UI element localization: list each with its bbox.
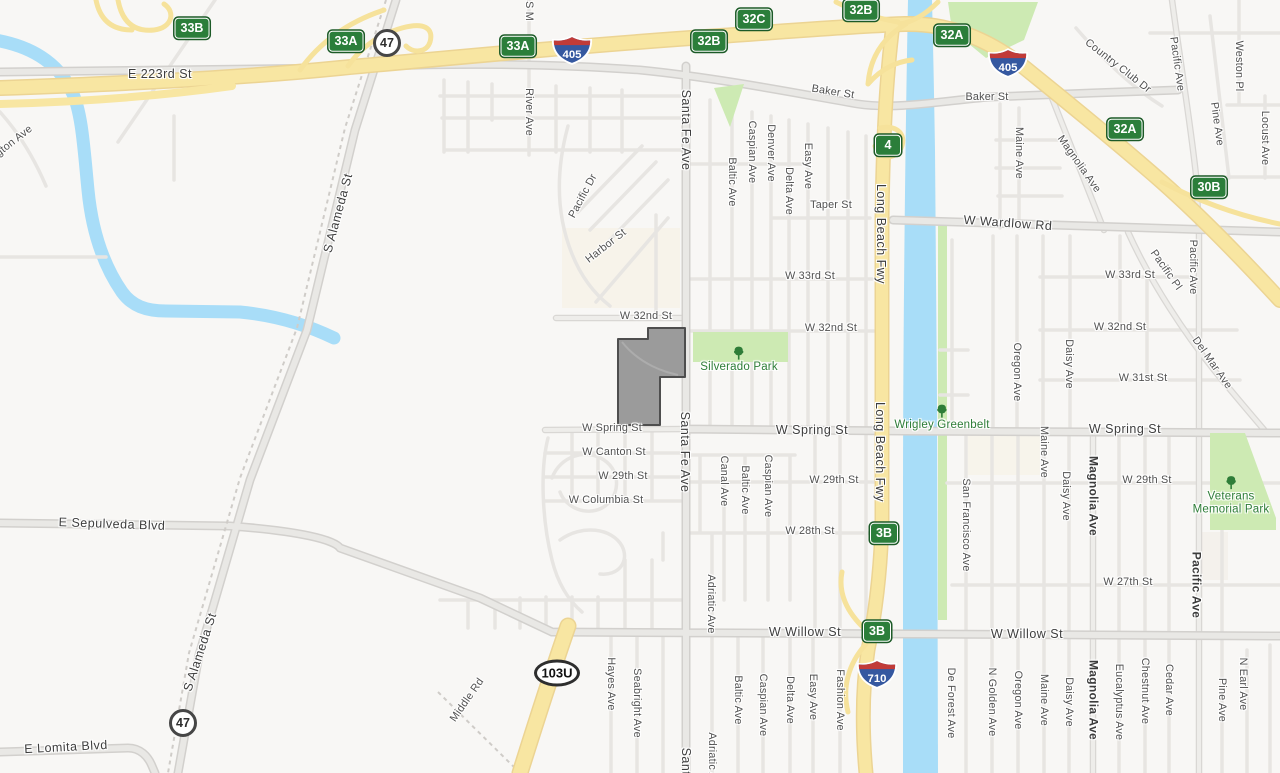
silverado-park-area [693,332,788,362]
river-channel-east [903,0,938,773]
basemap [0,0,1280,773]
map-canvas[interactable]: E 223rd Stgton AveS Alameda StS Alameda … [0,0,1280,773]
wrigley-greenbelt-strip [938,223,947,620]
